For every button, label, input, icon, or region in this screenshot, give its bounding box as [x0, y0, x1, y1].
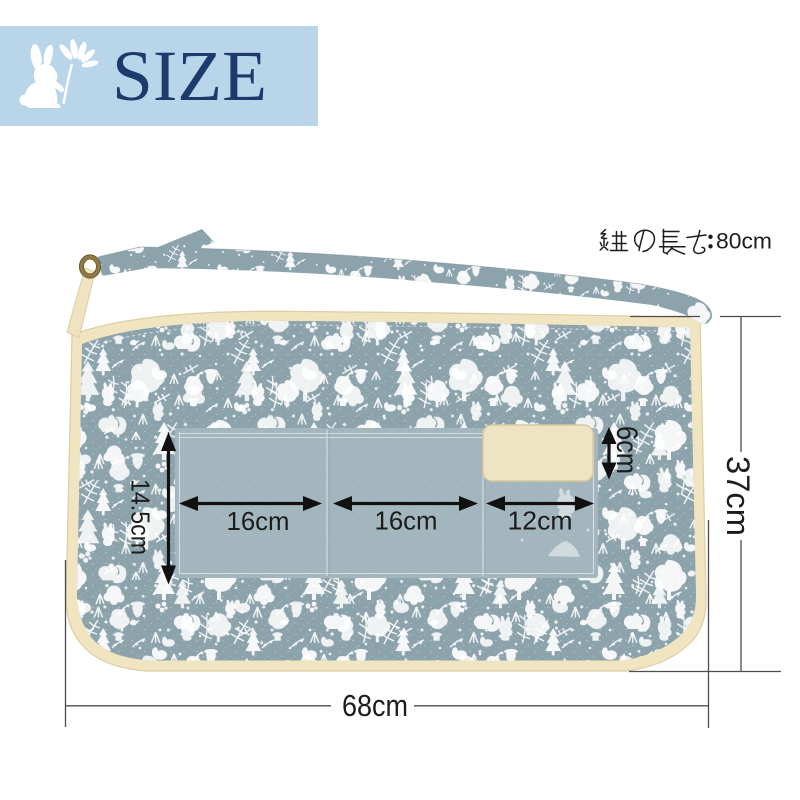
- svg-text:12cm: 12cm: [508, 506, 573, 536]
- svg-text:80cm: 80cm: [716, 229, 772, 254]
- svg-text:6cm: 6cm: [610, 426, 643, 474]
- svg-text:14.5cm: 14.5cm: [126, 479, 156, 555]
- svg-text:16cm: 16cm: [375, 506, 438, 536]
- svg-text:16cm: 16cm: [227, 506, 290, 536]
- svg-text:68cm: 68cm: [342, 688, 408, 723]
- svg-text:SIZE: SIZE: [112, 36, 267, 116]
- svg-text:37cm: 37cm: [720, 456, 756, 536]
